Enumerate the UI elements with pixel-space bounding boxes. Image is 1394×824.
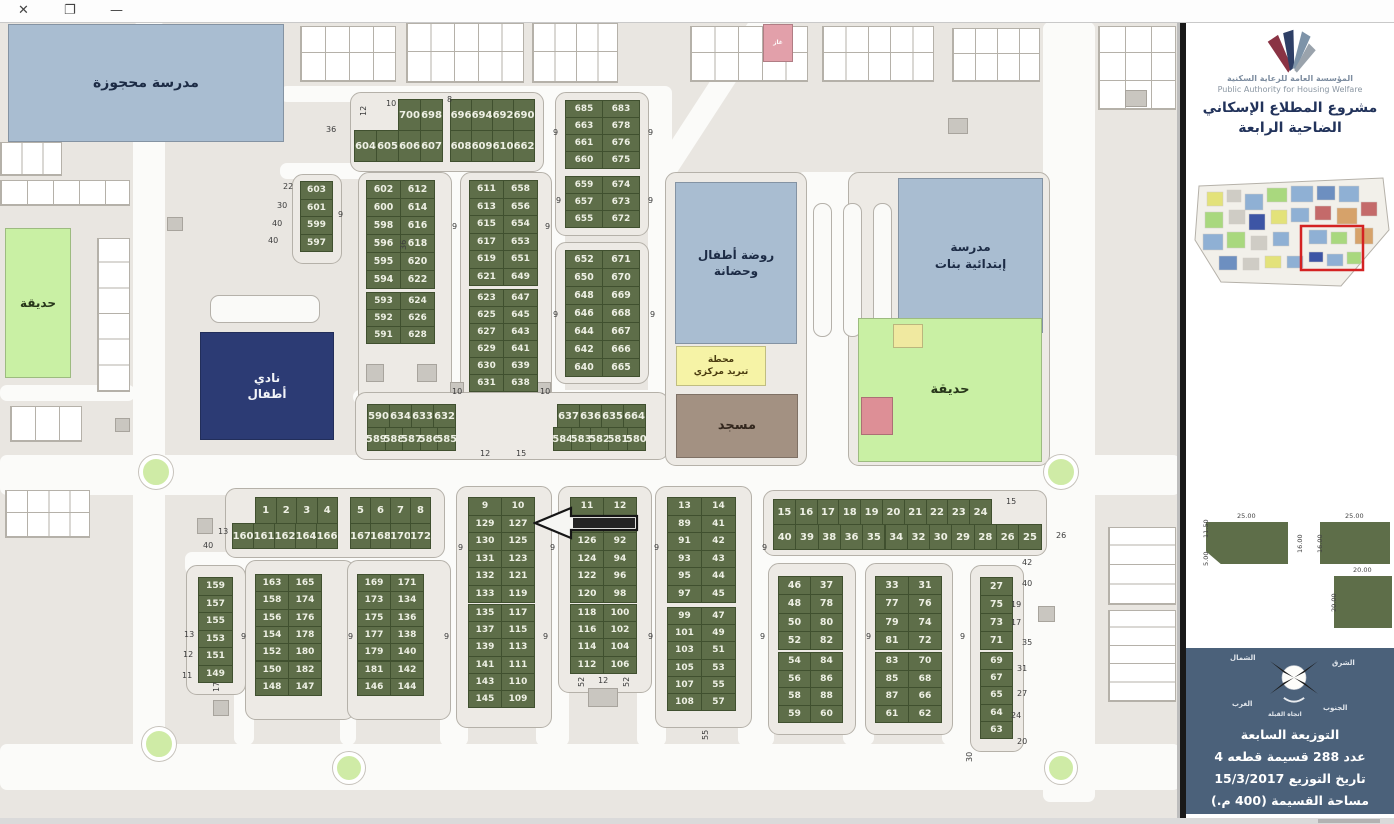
plot-78: 78 [810, 594, 843, 613]
plot-8: 8 [410, 497, 431, 524]
plot-643: 643 [503, 323, 538, 341]
plot-56: 56 [778, 670, 811, 689]
plot-32: 32 [907, 524, 930, 550]
dimension-label: 9 [553, 310, 558, 319]
street [1043, 22, 1095, 802]
plot-104: 104 [603, 638, 637, 656]
plot-660: 660 [565, 151, 603, 169]
plot-123: 123 [501, 550, 535, 569]
plot-29: 29 [951, 524, 974, 550]
dimension-value: 25.00 [1237, 512, 1256, 520]
plot-83: 83 [875, 652, 909, 671]
parking-strip [843, 203, 862, 337]
plot-609: 609 [471, 130, 493, 162]
plot-shape-diagram [1320, 522, 1390, 564]
authority-name-arabic: المؤسسة العامة للرعاية السكنية [1186, 74, 1394, 83]
plot-67: 67 [980, 669, 1013, 687]
dimension-label: 9 [866, 632, 871, 641]
dimension-label: 9 [648, 196, 653, 205]
plot-678: 678 [602, 117, 640, 135]
dimension-label: 12 [183, 650, 193, 659]
plot-143: 143 [468, 673, 502, 691]
mosque: مسجد [676, 394, 798, 458]
plot-623: 623 [469, 289, 504, 307]
plot-42: 42 [701, 532, 736, 551]
plot-154: 154 [255, 626, 289, 644]
plot-181: 181 [357, 661, 391, 679]
plot-665: 665 [602, 358, 640, 377]
plot-157: 157 [198, 595, 233, 614]
authority-logo-icon [1253, 28, 1327, 76]
plot-162: 162 [274, 523, 296, 549]
plot-19: 19 [860, 499, 883, 525]
plot-167: 167 [350, 523, 371, 549]
plot-621: 621 [469, 268, 504, 287]
plot-657: 657 [565, 193, 603, 211]
plot-9: 9 [468, 497, 502, 516]
distribution-date: تاريخ التوزيع 15/3/2017 [1186, 771, 1394, 786]
unassigned-plot-grid [1108, 610, 1176, 702]
restore-button[interactable]: ❐ [64, 1, 76, 21]
dimension-value: 20.00 [1353, 566, 1372, 574]
plot-652: 652 [565, 250, 603, 269]
plot-692: 692 [492, 99, 514, 131]
plot-106: 106 [603, 656, 637, 674]
plot-112: 112 [570, 656, 604, 674]
plot-72: 72 [908, 631, 942, 650]
plot-142: 142 [390, 661, 424, 679]
dimension-label: 31 [1017, 664, 1027, 673]
plot-664: 664 [623, 404, 646, 428]
plot-16: 16 [795, 499, 818, 525]
plot-626: 626 [400, 309, 435, 327]
plot-597: 597 [300, 234, 333, 253]
plot-100: 100 [603, 604, 637, 622]
dimension-label: 9 [556, 196, 561, 205]
utility-structure [115, 418, 130, 432]
plot-173: 173 [357, 591, 391, 609]
plot-619: 619 [469, 250, 504, 269]
unassigned-plot-grid [300, 26, 396, 82]
dimension-label: 8 [447, 95, 452, 104]
plot-661: 661 [565, 134, 603, 152]
plot-58: 58 [778, 687, 811, 706]
dimension-label: 9 [654, 543, 659, 552]
plot-64: 64 [980, 704, 1013, 722]
plot-110: 110 [501, 673, 535, 691]
dimension-value: 16.00 [1296, 534, 1304, 553]
plot-640: 640 [565, 358, 603, 377]
plot-118: 118 [570, 604, 604, 622]
plot-608: 608 [450, 130, 472, 162]
kindergarten: روضة أطفال وحضانة [675, 182, 797, 344]
plot-132: 132 [468, 567, 502, 586]
plot-630: 630 [469, 357, 504, 375]
plot-617: 617 [469, 233, 504, 252]
plot-41: 41 [701, 515, 736, 534]
plot-694: 694 [471, 99, 493, 131]
plot-99: 99 [667, 607, 702, 625]
plot-79: 79 [875, 613, 909, 632]
plot-10: 10 [501, 497, 535, 516]
dimension-label: 30 [277, 201, 287, 210]
plot-27: 27 [980, 577, 1013, 596]
dimension-label: 35 [1022, 638, 1032, 647]
dimension-label: 40 [1022, 579, 1032, 588]
plot-shape-diagram [1206, 522, 1288, 564]
plot-113: 113 [501, 638, 535, 656]
plot-shape-diagram [1334, 576, 1392, 628]
plot-670: 670 [602, 268, 640, 287]
qibla-direction-label: اتجاه القبلة [1268, 711, 1302, 718]
plot-87: 87 [875, 687, 909, 706]
park-west: حديقة [5, 228, 71, 378]
plot-121: 121 [501, 567, 535, 586]
dimension-label: 13 [184, 630, 194, 639]
plot-107: 107 [667, 676, 702, 694]
plot-14: 14 [701, 497, 736, 516]
plot-624: 624 [400, 292, 435, 310]
plot-148: 148 [255, 678, 289, 696]
plot-91: 91 [667, 532, 702, 551]
plot-176: 176 [288, 609, 322, 627]
plot-161: 161 [253, 523, 275, 549]
dimension-label: 9 [650, 310, 655, 319]
plot-685: 685 [565, 100, 603, 118]
dimension-label: 9 [348, 632, 353, 641]
plot-149: 149 [198, 665, 233, 684]
plot-673: 673 [602, 193, 640, 211]
plot-169: 169 [357, 574, 391, 592]
plot-37: 37 [810, 576, 843, 595]
dimension-label: 40 [268, 236, 278, 245]
plot-5: 5 [350, 497, 371, 524]
plot-590: 590 [367, 404, 390, 428]
plot-629: 629 [469, 340, 504, 358]
plot-160: 160 [232, 523, 254, 549]
plot-582: 582 [590, 427, 609, 451]
plot-690: 690 [513, 99, 535, 131]
plot-61: 61 [875, 705, 909, 724]
plot-645: 645 [503, 306, 538, 324]
dimension-label: 36 [326, 125, 336, 134]
plot-69: 69 [980, 652, 1013, 670]
plot-634: 634 [389, 404, 412, 428]
plot-89: 89 [667, 515, 702, 534]
plot-53: 53 [701, 659, 736, 677]
dimension-label: 40 [203, 541, 213, 550]
plot-178: 178 [288, 626, 322, 644]
site-plan-canvas[interactable]: مدرسة محجوزةروضة أطفال وحضانةمدرسة إبتدا… [0, 22, 1180, 818]
plot-601: 601 [300, 199, 333, 218]
plot-658: 658 [503, 180, 538, 199]
dimension-label: 30 [965, 752, 974, 762]
plot-45: 45 [701, 585, 736, 604]
unassigned-plot-grid [0, 180, 130, 206]
plot-583: 583 [571, 427, 590, 451]
dimension-label: 11 [182, 671, 192, 680]
plot-74: 74 [908, 613, 942, 632]
horizontal-scrollbar[interactable] [0, 818, 1394, 824]
plot-26: 26 [996, 524, 1019, 550]
dimension-label: 10 [540, 387, 550, 396]
plot-7: 7 [390, 497, 411, 524]
scrollbar-thumb[interactable] [1318, 819, 1380, 823]
gas-station: غاز [763, 24, 793, 62]
plot-163: 163 [255, 574, 289, 592]
utility-structure [213, 700, 229, 716]
dimension-label: 19 [1011, 600, 1021, 609]
plot-75: 75 [980, 595, 1013, 614]
plot-130: 130 [468, 532, 502, 551]
plot-180: 180 [288, 643, 322, 661]
compass-south-label: الجنوب [1323, 704, 1347, 712]
dimension-label: 17 [1011, 618, 1021, 627]
plot-668: 668 [602, 304, 640, 323]
plot-674: 674 [602, 176, 640, 194]
plot-144: 144 [390, 678, 424, 696]
plot-168: 168 [370, 523, 391, 549]
app-window: ✕ ❐ — مدرسة محجوزةروضة أطفال وحضانةمدرسة… [0, 0, 1394, 824]
plot-581: 581 [608, 427, 627, 451]
plot-85: 85 [875, 670, 909, 689]
plot-1: 1 [255, 497, 277, 524]
dimension-label: 27 [1017, 689, 1027, 698]
dimension-label: 9 [338, 210, 343, 219]
dimension-label: 20 [1017, 737, 1027, 746]
utility-structure [1038, 606, 1055, 622]
utility-structure [366, 364, 384, 382]
plot-120: 120 [570, 585, 604, 604]
distribution-name: التوزيعة السابعة [1186, 727, 1394, 742]
plot-97: 97 [667, 585, 702, 604]
plot-171: 171 [390, 574, 424, 592]
unassigned-plot-grid [0, 142, 62, 176]
plot-622: 622 [400, 270, 435, 289]
plot-20: 20 [882, 499, 905, 525]
children-club: نادي أطفال [200, 332, 334, 440]
roundabout [1044, 455, 1078, 489]
plot-102: 102 [603, 621, 637, 639]
dimension-value: 5.00 [1202, 552, 1210, 566]
plot-115: 115 [501, 621, 535, 639]
plot-59: 59 [778, 705, 811, 724]
plot-33: 33 [875, 576, 909, 595]
plot-70: 70 [908, 652, 942, 671]
plot-21: 21 [904, 499, 927, 525]
parking-strip [873, 203, 892, 337]
plot-594: 594 [366, 270, 401, 289]
plot-24: 24 [969, 499, 992, 525]
plot-698: 698 [420, 99, 443, 131]
plot-158: 158 [255, 591, 289, 609]
plot-39: 39 [795, 524, 818, 550]
plot-633: 633 [411, 404, 434, 428]
masterplan-overview-map [1191, 172, 1391, 296]
dimension-value: 25.00 [1345, 512, 1364, 520]
plot-635: 635 [601, 404, 624, 428]
plot-147: 147 [288, 678, 322, 696]
plot-88: 88 [810, 687, 843, 706]
plot-101: 101 [667, 624, 702, 642]
dimension-value: 11.50 [1202, 519, 1210, 538]
dimension-label: 13 [218, 527, 228, 536]
close-button[interactable]: ✕ [18, 1, 29, 21]
plot-93: 93 [667, 550, 702, 569]
park-east: حديقة [858, 318, 1042, 462]
plot-135: 135 [468, 604, 502, 622]
plot-140: 140 [390, 643, 424, 661]
plot-599: 599 [300, 216, 333, 235]
plot-31: 31 [908, 576, 942, 595]
roundabout [333, 752, 365, 784]
plot-15: 15 [773, 499, 796, 525]
plot-125: 125 [501, 532, 535, 551]
dimension-label: 9 [760, 632, 765, 641]
plot-631: 631 [469, 374, 504, 392]
dimension-label: 12 [359, 106, 368, 116]
plot-164: 164 [295, 523, 317, 549]
unassigned-plot-grid [10, 406, 82, 442]
plot-139: 139 [468, 638, 502, 656]
plot-35: 35 [862, 524, 885, 550]
plot-47: 47 [701, 607, 736, 625]
unassigned-plot-grid [822, 26, 934, 82]
plot-620: 620 [400, 252, 435, 271]
plot-23: 23 [947, 499, 970, 525]
dimension-label: 9 [545, 222, 550, 231]
plot-43: 43 [701, 550, 736, 569]
plot-52: 52 [778, 631, 811, 650]
plot-611: 611 [469, 180, 504, 199]
unassigned-plot-grid [1108, 527, 1176, 605]
plot-696: 696 [450, 99, 472, 131]
plot-134: 134 [390, 591, 424, 609]
plot-127: 127 [501, 515, 535, 534]
utility-structure [588, 688, 618, 707]
plot-650: 650 [565, 268, 603, 287]
plot-80: 80 [810, 613, 843, 632]
plot-165: 165 [288, 574, 322, 592]
plot-84: 84 [810, 652, 843, 671]
plot-62: 62 [908, 705, 942, 724]
plot-628: 628 [400, 326, 435, 344]
plot-28: 28 [974, 524, 997, 550]
plot-151: 151 [198, 647, 233, 666]
plot-40: 40 [773, 524, 796, 550]
unassigned-plot-grid [532, 23, 618, 83]
plot-639: 639 [503, 357, 538, 375]
plot-655: 655 [565, 210, 603, 228]
plot-131: 131 [468, 550, 502, 569]
dimension-label: 22 [283, 182, 293, 191]
plot-55: 55 [701, 676, 736, 694]
dimension-label: 9 [960, 632, 965, 641]
plot-580: 580 [627, 427, 646, 451]
plot-71: 71 [980, 631, 1013, 650]
plot-98: 98 [603, 585, 637, 604]
dimension-label: 9 [458, 543, 463, 552]
project-subtitle: الضاحية الرابعة [1186, 120, 1394, 136]
plot-612: 612 [400, 180, 435, 199]
plot-642: 642 [565, 340, 603, 359]
project-title: مشروع المطلاع الإسكاني [1186, 100, 1394, 116]
plot-38: 38 [818, 524, 841, 550]
plot-108: 108 [667, 693, 702, 711]
dimension-label: 15 [1006, 497, 1016, 506]
plot-50: 50 [778, 613, 811, 632]
plot-36: 36 [840, 524, 863, 550]
plot-17: 17 [817, 499, 840, 525]
plot-136: 136 [390, 609, 424, 627]
plot-627: 627 [469, 323, 504, 341]
plot-119: 119 [501, 585, 535, 604]
plot-637: 637 [557, 404, 580, 428]
plot-610: 610 [492, 130, 514, 162]
plot-6: 6 [370, 497, 391, 524]
dimension-label: 17 [212, 682, 221, 692]
plot-137: 137 [468, 621, 502, 639]
compass-west-label: الغرب [1232, 700, 1252, 708]
plot-141: 141 [468, 656, 502, 674]
plot-653: 653 [503, 233, 538, 252]
plot-700: 700 [398, 99, 421, 131]
plot-48: 48 [778, 594, 811, 613]
central-cooling-station: محطة تبريد مركزي [676, 346, 766, 386]
compass-rose-icon [1256, 652, 1332, 712]
plot-18: 18 [838, 499, 861, 525]
plot-82: 82 [810, 631, 843, 650]
distribution-info-panel: الشمال الشرق الغرب الجنوب اتجاه القبلة ا… [1186, 648, 1394, 814]
dimension-label: 9 [648, 632, 653, 641]
plot-13: 13 [667, 497, 702, 516]
plot-count: عدد 288 قسيمة قطعه 4 [1186, 749, 1394, 764]
plot-607: 607 [420, 130, 443, 162]
plot-649: 649 [503, 268, 538, 287]
plot-669: 669 [602, 286, 640, 305]
dimension-label: 36 [399, 240, 408, 250]
parking-strip [813, 203, 832, 337]
plot-585: 585 [437, 427, 456, 451]
plot-54: 54 [778, 652, 811, 671]
dimension-label: 9 [452, 222, 457, 231]
plot-593: 593 [366, 292, 401, 310]
reserved-school: مدرسة محجوزة [8, 24, 284, 142]
utility-structure [948, 118, 968, 134]
plot-152: 152 [255, 643, 289, 661]
plot-68: 68 [908, 670, 942, 689]
plot-662: 662 [513, 130, 535, 162]
utility-structure [1125, 90, 1147, 107]
plot-63: 63 [980, 721, 1013, 739]
plot-60: 60 [810, 705, 843, 724]
dimension-label: 9 [553, 128, 558, 137]
unassigned-plot-grid [5, 490, 90, 538]
compass-north-label: الشمال [1230, 654, 1256, 662]
plot-3: 3 [296, 497, 318, 524]
dimension-label: 55 [701, 730, 710, 740]
plot-145: 145 [468, 690, 502, 708]
plot-656: 656 [503, 198, 538, 217]
plot-153: 153 [198, 630, 233, 649]
minimize-button[interactable]: — [110, 1, 123, 21]
plot-676: 676 [602, 134, 640, 152]
plot-96: 96 [603, 567, 637, 586]
plot-105: 105 [667, 659, 702, 677]
plot-dimension-diagrams: 25.0016.0011.505.0025.0016.0020.0020.00 [1186, 474, 1394, 644]
info-sidebar: المؤسسة العامة للرعاية السكنية Public Au… [1180, 22, 1394, 818]
plot-675: 675 [602, 151, 640, 169]
